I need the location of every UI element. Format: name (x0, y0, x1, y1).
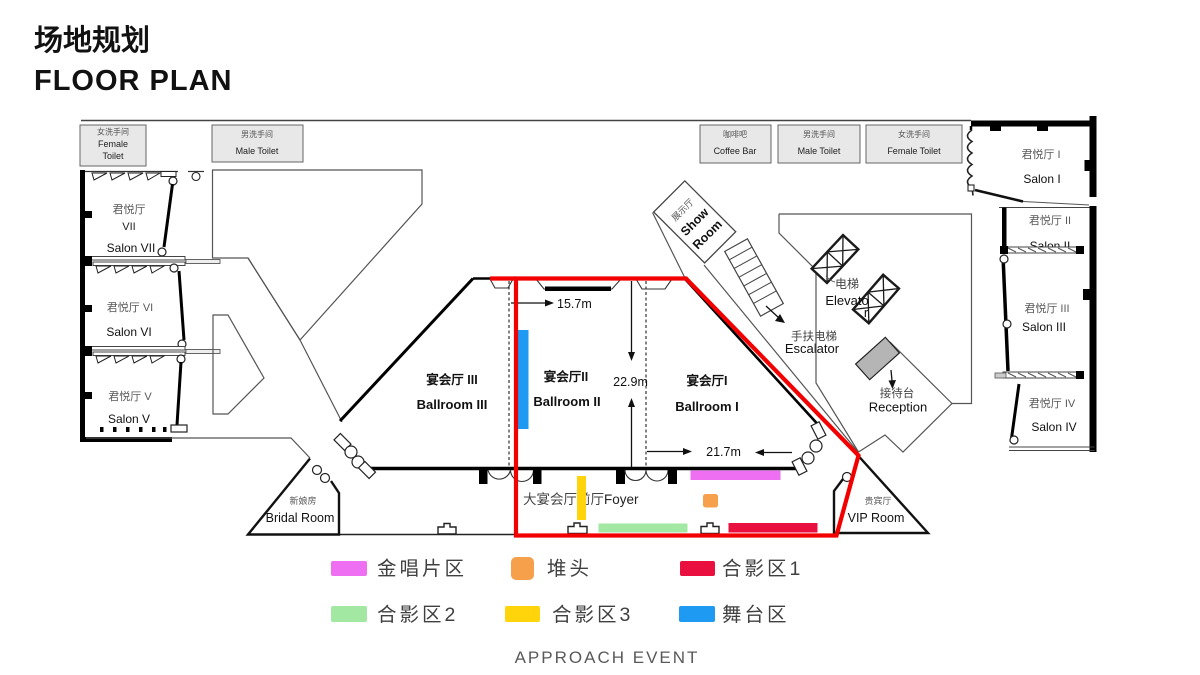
svg-text:女洗手间: 女洗手间 (898, 129, 930, 139)
svg-text:君悦厅 IV: 君悦厅 IV (1029, 396, 1076, 410)
svg-text:Female: Female (98, 139, 128, 149)
svg-text:Female Toilet: Female Toilet (887, 146, 941, 156)
svg-text:宴会厅II: 宴会厅II (544, 369, 588, 384)
svg-text:君悦厅 III: 君悦厅 III (1024, 301, 1069, 315)
svg-text:宴会厅 III: 宴会厅 III (426, 372, 477, 387)
svg-text:合影区3: 合影区3 (552, 604, 633, 626)
svg-text:男洗手间: 男洗手间 (241, 129, 273, 139)
svg-text:场地规划: 场地规划 (34, 24, 150, 57)
svg-text:女洗手间: 女洗手间 (97, 127, 129, 137)
svg-text:合影区2: 合影区2 (377, 604, 458, 626)
svg-text:Toilet: Toilet (102, 151, 124, 161)
svg-text:Salon VI: Salon VI (106, 325, 151, 339)
svg-text:Male Toilet: Male Toilet (236, 146, 279, 156)
svg-text:宴会厅I: 宴会厅I (687, 373, 728, 388)
svg-text:Ballroom II: Ballroom II (533, 394, 600, 409)
svg-text:新娘房: 新娘房 (289, 495, 316, 506)
svg-text:君悦厅 I: 君悦厅 I (1021, 147, 1060, 161)
svg-text:君悦厅: 君悦厅 (113, 202, 146, 216)
svg-text:Coffee Bar: Coffee Bar (714, 146, 757, 156)
svg-text:Ballroom III: Ballroom III (417, 397, 488, 412)
svg-text:Reception: Reception (869, 400, 928, 415)
svg-text:22.9m: 22.9m (613, 375, 648, 389)
svg-text:君悦厅 V: 君悦厅 V (108, 389, 152, 403)
svg-text:21.7m: 21.7m (706, 445, 741, 459)
svg-text:APPROACH EVENT: APPROACH EVENT (515, 648, 700, 667)
svg-text:堆头: 堆头 (547, 558, 592, 580)
svg-text:Salon IV: Salon IV (1031, 420, 1076, 434)
svg-text:咖啡吧: 咖啡吧 (723, 129, 747, 139)
svg-text:Salon III: Salon III (1022, 320, 1066, 334)
svg-text:15.7m: 15.7m (557, 297, 592, 311)
svg-text:Salon V: Salon V (108, 412, 150, 426)
svg-text:Escalator: Escalator (785, 341, 840, 356)
svg-text:Elevato: Elevato (825, 293, 868, 308)
svg-text:金唱片区: 金唱片区 (377, 558, 467, 580)
svg-text:君悦厅 II: 君悦厅 II (1029, 213, 1071, 227)
svg-text:舞台区: 舞台区 (722, 604, 790, 626)
svg-text:君悦厅 VI: 君悦厅 VI (107, 300, 153, 314)
svg-text:接待台: 接待台 (880, 386, 915, 400)
svg-text:贵宾厅: 贵宾厅 (864, 495, 891, 506)
svg-text:Salon I: Salon I (1023, 172, 1060, 186)
svg-text:Bridal Room: Bridal Room (266, 511, 335, 525)
svg-text:VII: VII (122, 221, 135, 233)
svg-text:VIP Room: VIP Room (848, 511, 905, 525)
svg-text:电梯: 电梯 (835, 277, 859, 291)
svg-text:Male Toilet: Male Toilet (798, 146, 841, 156)
svg-text:Ballroom I: Ballroom I (675, 399, 739, 414)
svg-text:Salon VII: Salon VII (107, 241, 156, 255)
svg-text:合影区1: 合影区1 (722, 558, 803, 580)
svg-text:男洗手间: 男洗手间 (803, 129, 835, 139)
svg-text:r: r (864, 305, 869, 320)
svg-text:FLOOR PLAN: FLOOR PLAN (34, 65, 233, 97)
